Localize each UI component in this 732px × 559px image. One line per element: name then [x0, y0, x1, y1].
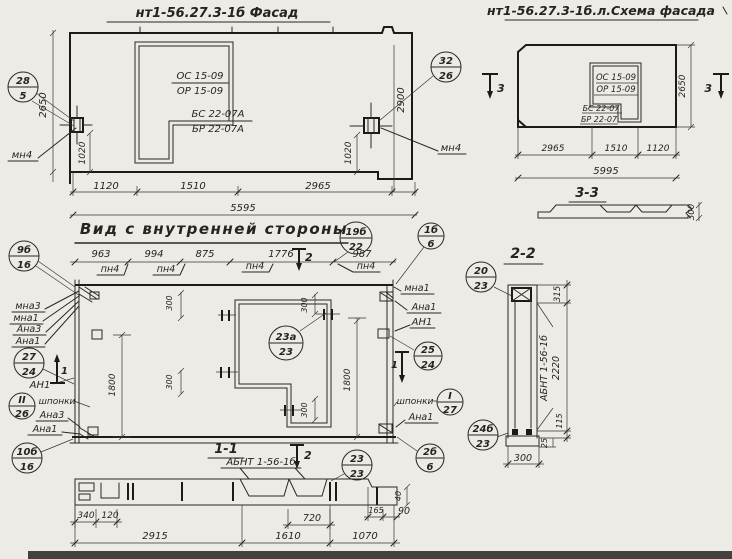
inner-pn4-labels: пн4 пн4 пн4 пн4 [97, 261, 380, 275]
label-mna1-left: мна1 [13, 313, 38, 324]
facade-panel-mark-bottom: БР 22-07А [192, 124, 244, 135]
scan-edge-band [28, 551, 732, 559]
facade-dim-right: 2900 [396, 87, 407, 112]
svg-text:10б: 10б [17, 446, 38, 458]
svg-text:пн4: пн4 [246, 261, 264, 272]
svg-text:27: 27 [443, 405, 457, 416]
section-1-1-label: АБНТ 1-56-1б [225, 456, 295, 468]
svg-text:2965: 2965 [305, 181, 330, 192]
svg-text:2965: 2965 [542, 144, 565, 154]
svg-text:5595: 5595 [230, 203, 255, 214]
svg-text:1800: 1800 [108, 373, 118, 396]
label-mna1-right: мна1 [404, 283, 429, 294]
label-mna3-left: мна3 [15, 301, 40, 312]
label-an1-right: АН1 [411, 317, 433, 328]
svg-text:2: 2 [304, 449, 312, 462]
facade-title: нт1-56.27.3-1б Фасад [136, 6, 299, 21]
section-2-2: 2-2 20 23 24б 23 АБНТ 1-56-1б 315 [466, 246, 571, 468]
svg-text:1: 1 [61, 366, 68, 377]
svg-text:1800: 1800 [343, 368, 353, 391]
svg-text:I: I [448, 391, 452, 402]
svg-text:2915: 2915 [142, 531, 167, 542]
facade-window-mark-top: ОС 15-09 [176, 71, 223, 82]
label-ana1-left: Ана1 [15, 336, 41, 347]
svg-text:20: 20 [474, 266, 488, 277]
section-3-marker-left: 3 [482, 74, 505, 99]
section-3-3-keys [600, 205, 672, 212]
section-3-3-title: 3-3 [575, 186, 599, 201]
callout-II-26: II 26 [9, 393, 35, 420]
svg-text:6: 6 [427, 462, 434, 473]
facade-embed-label-left: мн4 [12, 150, 32, 161]
svg-text:23: 23 [350, 454, 364, 465]
section-1-1-bar [75, 479, 397, 505]
svg-text:пн4: пн4 [357, 261, 375, 272]
svg-text:300: 300 [165, 374, 174, 389]
facade-panel-outline [70, 27, 412, 184]
svg-text:пн4: пн4 [157, 264, 175, 275]
section-1-1-dims: 340 120 720 165 90 40 2915 1610 1070 [70, 484, 410, 547]
svg-text:16: 16 [17, 260, 31, 271]
svg-text:963: 963 [91, 249, 110, 260]
svg-text:23а: 23а [276, 332, 297, 343]
svg-text:300: 300 [165, 295, 174, 310]
label-ana1-right-2: Ана1 [408, 412, 434, 423]
svg-text:1б: 1б [424, 224, 438, 236]
svg-text:1510: 1510 [605, 144, 628, 154]
label-ana1-left-2: Ана1 [32, 424, 58, 435]
callout-24b-23: 24б 23 [468, 420, 508, 450]
section-3-3: 3-3 300 [538, 186, 702, 221]
svg-text:19б: 19б [346, 226, 367, 238]
svg-text:340: 340 [77, 511, 94, 521]
svg-text:115: 115 [555, 413, 564, 428]
svg-text:28: 28 [16, 76, 30, 87]
scheme-title: нт1-56.27.3-1б.л.Схема фасада [487, 3, 715, 18]
svg-text:300: 300 [300, 402, 309, 417]
svg-text:9б: 9б [17, 244, 31, 256]
facade-dim-embed-left: 1020 [78, 141, 88, 164]
callout-2b-6: 2б 6 [397, 437, 444, 473]
svg-text:26: 26 [439, 71, 453, 82]
callout-9b-16: 9б 16 [9, 241, 80, 296]
facade-embed-label-right: мн4 [441, 143, 461, 154]
svg-text:300: 300 [514, 453, 532, 464]
callout-1b-6: 1б 6 [396, 223, 444, 284]
svg-text:25: 25 [540, 438, 549, 448]
section-1-1-rebar-marks [128, 482, 377, 505]
svg-text:875: 875 [195, 249, 214, 260]
callout-10b-16: 10б 16 [12, 439, 73, 473]
svg-text:26: 26 [15, 409, 29, 420]
label-shponki-left: шпонки [39, 397, 76, 407]
scheme-panel-mark-top: БС 22-07 [583, 104, 621, 113]
svg-text:1610: 1610 [275, 531, 300, 542]
svg-text:2: 2 [305, 251, 313, 264]
svg-text:300: 300 [300, 297, 309, 312]
facade-window-frame [139, 46, 229, 159]
section-2-2-bottom-plate [506, 436, 539, 446]
facade-drawing: нт1-56.27.3-1б Фасад ОС 15-09 ОР 15-09 Б… [8, 6, 466, 218]
svg-text:1070: 1070 [352, 531, 377, 542]
svg-text:2220: 2220 [551, 356, 562, 380]
svg-text:1: 1 [391, 360, 398, 371]
svg-text:40: 40 [394, 491, 403, 501]
svg-text:23: 23 [350, 469, 364, 480]
callout-23a-23: 23а 23 [269, 313, 326, 360]
inner-view-drawing: Вид с внутренней стороны 19б 22 1б 6 963… [9, 220, 463, 473]
section-3-3-thickness: 300 [687, 204, 697, 220]
svg-text:24: 24 [421, 360, 435, 371]
label-ana3-left: Ана3 [16, 324, 42, 335]
facade-bottom-dims: 1120 1510 2965 5595 [70, 172, 418, 218]
scheme-dim-height: 2650 [678, 74, 688, 97]
svg-text:23: 23 [476, 439, 490, 450]
scheme-bottom-dims: 2965 1510 1120 5995 [515, 127, 680, 181]
scheme-window-mark-bottom: ОР 15-09 [596, 85, 635, 95]
inner-panel-side-edges [75, 280, 393, 443]
inner-clip-left [92, 330, 102, 339]
section-1-marker-left: 1 [50, 354, 68, 383]
inner-corner-detail-br [379, 424, 392, 433]
svg-text:315: 315 [553, 286, 563, 302]
facade-embed-left [60, 106, 92, 144]
section-2-2-title: 2-2 [510, 246, 535, 262]
section-1-1: 1-1 2 АБНТ 1-56-1б 23 23 340 120 720 [70, 442, 410, 547]
svg-text:23: 23 [279, 347, 293, 358]
label-ana1-right: Ана1 [411, 302, 437, 313]
svg-text:165: 165 [368, 506, 383, 515]
callout-32-26: 32 26 [379, 52, 461, 121]
facade-window-mark-bottom: ОР 15-09 [177, 86, 223, 97]
svg-text:24б: 24б [473, 423, 494, 435]
svg-text:II: II [18, 395, 26, 406]
svg-text:5995: 5995 [593, 166, 618, 177]
label-shponki-right: шпонки [397, 397, 434, 407]
svg-text:16: 16 [20, 462, 34, 473]
label-an1-left: АН1 [29, 380, 51, 391]
facade-panel-mark-top: БС 22-07А [192, 109, 245, 120]
inner-corner-detail-tl [79, 287, 99, 302]
svg-text:6: 6 [428, 239, 435, 250]
svg-text:пн4: пн4 [101, 264, 119, 275]
section-1-1-title: 1-1 [214, 442, 238, 457]
svg-text:24: 24 [22, 367, 36, 378]
facade-window-opening [135, 42, 233, 163]
section-2-marker-top: 2 [292, 249, 313, 271]
drawing-sheet: нт1-56.27.3-1б Фасад ОС 15-09 ОР 15-09 Б… [0, 0, 732, 559]
callout-20-23: 20 23 [466, 262, 512, 296]
inner-window-opening [235, 300, 331, 427]
svg-text:27: 27 [22, 352, 36, 363]
scheme-drawing: нт1-56.27.3-1б.л.Схема фасада ОС 15-09 О… [482, 3, 729, 181]
section-1-1-keys [240, 479, 327, 496]
section-3-marker-right: 3 [704, 74, 729, 99]
svg-text:987: 987 [352, 249, 372, 260]
section-1-marker-right: 1 [391, 352, 409, 383]
callout-I-27: I 27 [437, 389, 463, 416]
svg-text:1120: 1120 [93, 181, 118, 192]
facade-embed-right [350, 103, 392, 148]
scan-corner-mark [723, 7, 727, 14]
svg-text:120: 120 [101, 511, 118, 521]
svg-text:3: 3 [704, 82, 712, 95]
svg-text:1510: 1510 [180, 181, 205, 192]
svg-text:32: 32 [439, 56, 453, 67]
svg-text:1776: 1776 [268, 249, 293, 260]
label-ana3-left-2: Ана3 [39, 410, 65, 421]
svg-text:25: 25 [421, 345, 435, 356]
inner-view-title: Вид с внутренней стороны [80, 220, 348, 238]
svg-text:23: 23 [474, 281, 488, 292]
svg-text:2б: 2б [423, 446, 437, 458]
scheme-panel-mark-bottom: БР 22-07 [581, 115, 618, 124]
svg-text:994: 994 [144, 249, 163, 260]
svg-text:1120: 1120 [647, 144, 670, 154]
svg-text:720: 720 [303, 513, 321, 524]
section-2-2-column [508, 285, 537, 438]
scheme-window-mark-top: ОС 15-09 [596, 73, 636, 83]
section-1-1-left-detail [79, 483, 119, 500]
callout-23-23: 23 23 [331, 450, 372, 481]
svg-text:5: 5 [20, 91, 27, 102]
svg-text:3: 3 [497, 82, 505, 95]
facade-dim-embed-right: 1020 [344, 141, 354, 164]
section-2-2-label: АБНТ 1-56-1б [539, 335, 550, 402]
